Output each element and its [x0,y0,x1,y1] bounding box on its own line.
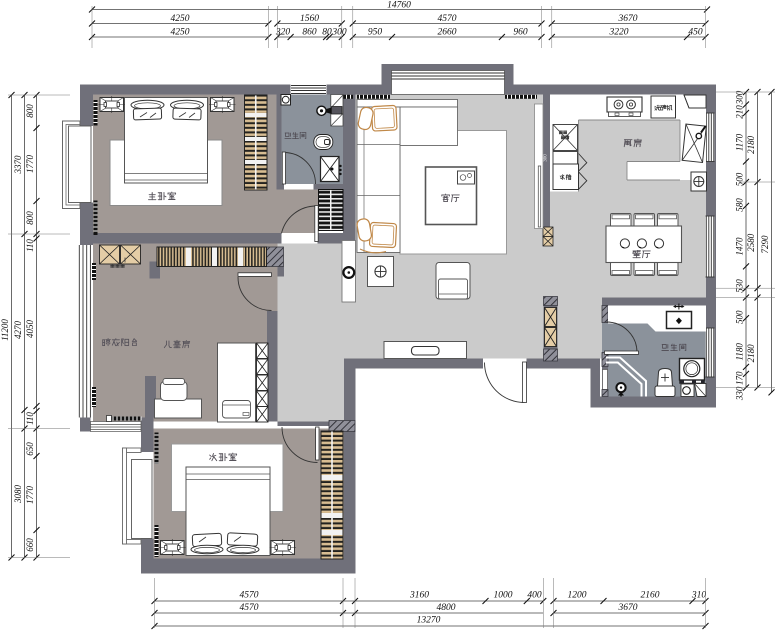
svg-text:1560: 1560 [300,14,319,24]
svg-text:4050: 4050 [25,320,35,339]
svg-text:11200: 11200 [0,319,10,341]
svg-text:500: 500 [735,172,745,186]
svg-text:7290: 7290 [760,235,770,254]
svg-text:4570: 4570 [240,591,259,601]
svg-text:4800: 4800 [437,603,456,613]
svg-text:1000: 1000 [494,591,513,601]
svg-text:210: 210 [735,105,745,119]
svg-text:580: 580 [735,198,745,212]
svg-text:860: 860 [302,27,317,37]
svg-text:1200: 1200 [568,591,587,601]
svg-text:310: 310 [691,591,707,601]
svg-text:3370: 3370 [13,155,23,175]
svg-text:950: 950 [368,27,383,37]
svg-text:2160: 2160 [641,591,660,601]
svg-text:4250: 4250 [171,14,190,24]
svg-text:110: 110 [25,239,35,252]
svg-text:1770: 1770 [25,155,35,174]
svg-text:3670: 3670 [618,14,638,24]
svg-text:14760: 14760 [387,1,411,11]
svg-text:650: 650 [25,442,35,456]
svg-text:530: 530 [735,279,745,293]
svg-text:960: 960 [513,27,528,37]
svg-text:3220: 3220 [609,27,629,37]
svg-text:300: 300 [735,90,745,105]
svg-text:450: 450 [688,27,703,37]
svg-text:400: 400 [527,591,542,601]
svg-text:3080: 3080 [13,485,23,505]
svg-text:80: 80 [322,27,332,37]
svg-text:13270: 13270 [417,616,441,626]
svg-text:2660: 2660 [438,27,457,37]
svg-text:1470: 1470 [735,237,745,256]
svg-text:1180: 1180 [735,343,745,361]
svg-text:1170: 1170 [735,133,745,151]
svg-text:4570: 4570 [438,14,457,24]
svg-text:2180: 2180 [746,344,756,363]
svg-text:2180: 2180 [746,135,756,154]
svg-text:1770: 1770 [25,486,35,505]
svg-text:2580: 2580 [746,233,756,252]
svg-text:3160: 3160 [409,591,429,601]
svg-text:4250: 4250 [171,27,190,37]
svg-text:800: 800 [25,211,35,225]
svg-text:4570: 4570 [240,603,259,613]
svg-text:3670: 3670 [618,603,638,613]
svg-text:330: 330 [735,386,745,401]
svg-text:110: 110 [25,412,35,425]
svg-text:300: 300 [544,154,549,162]
svg-text:500: 500 [735,310,745,324]
svg-text:300: 300 [331,27,347,37]
svg-text:170: 170 [735,371,745,385]
svg-text:660: 660 [25,538,35,552]
svg-text:4270: 4270 [13,321,23,340]
svg-text:800: 800 [25,104,35,118]
